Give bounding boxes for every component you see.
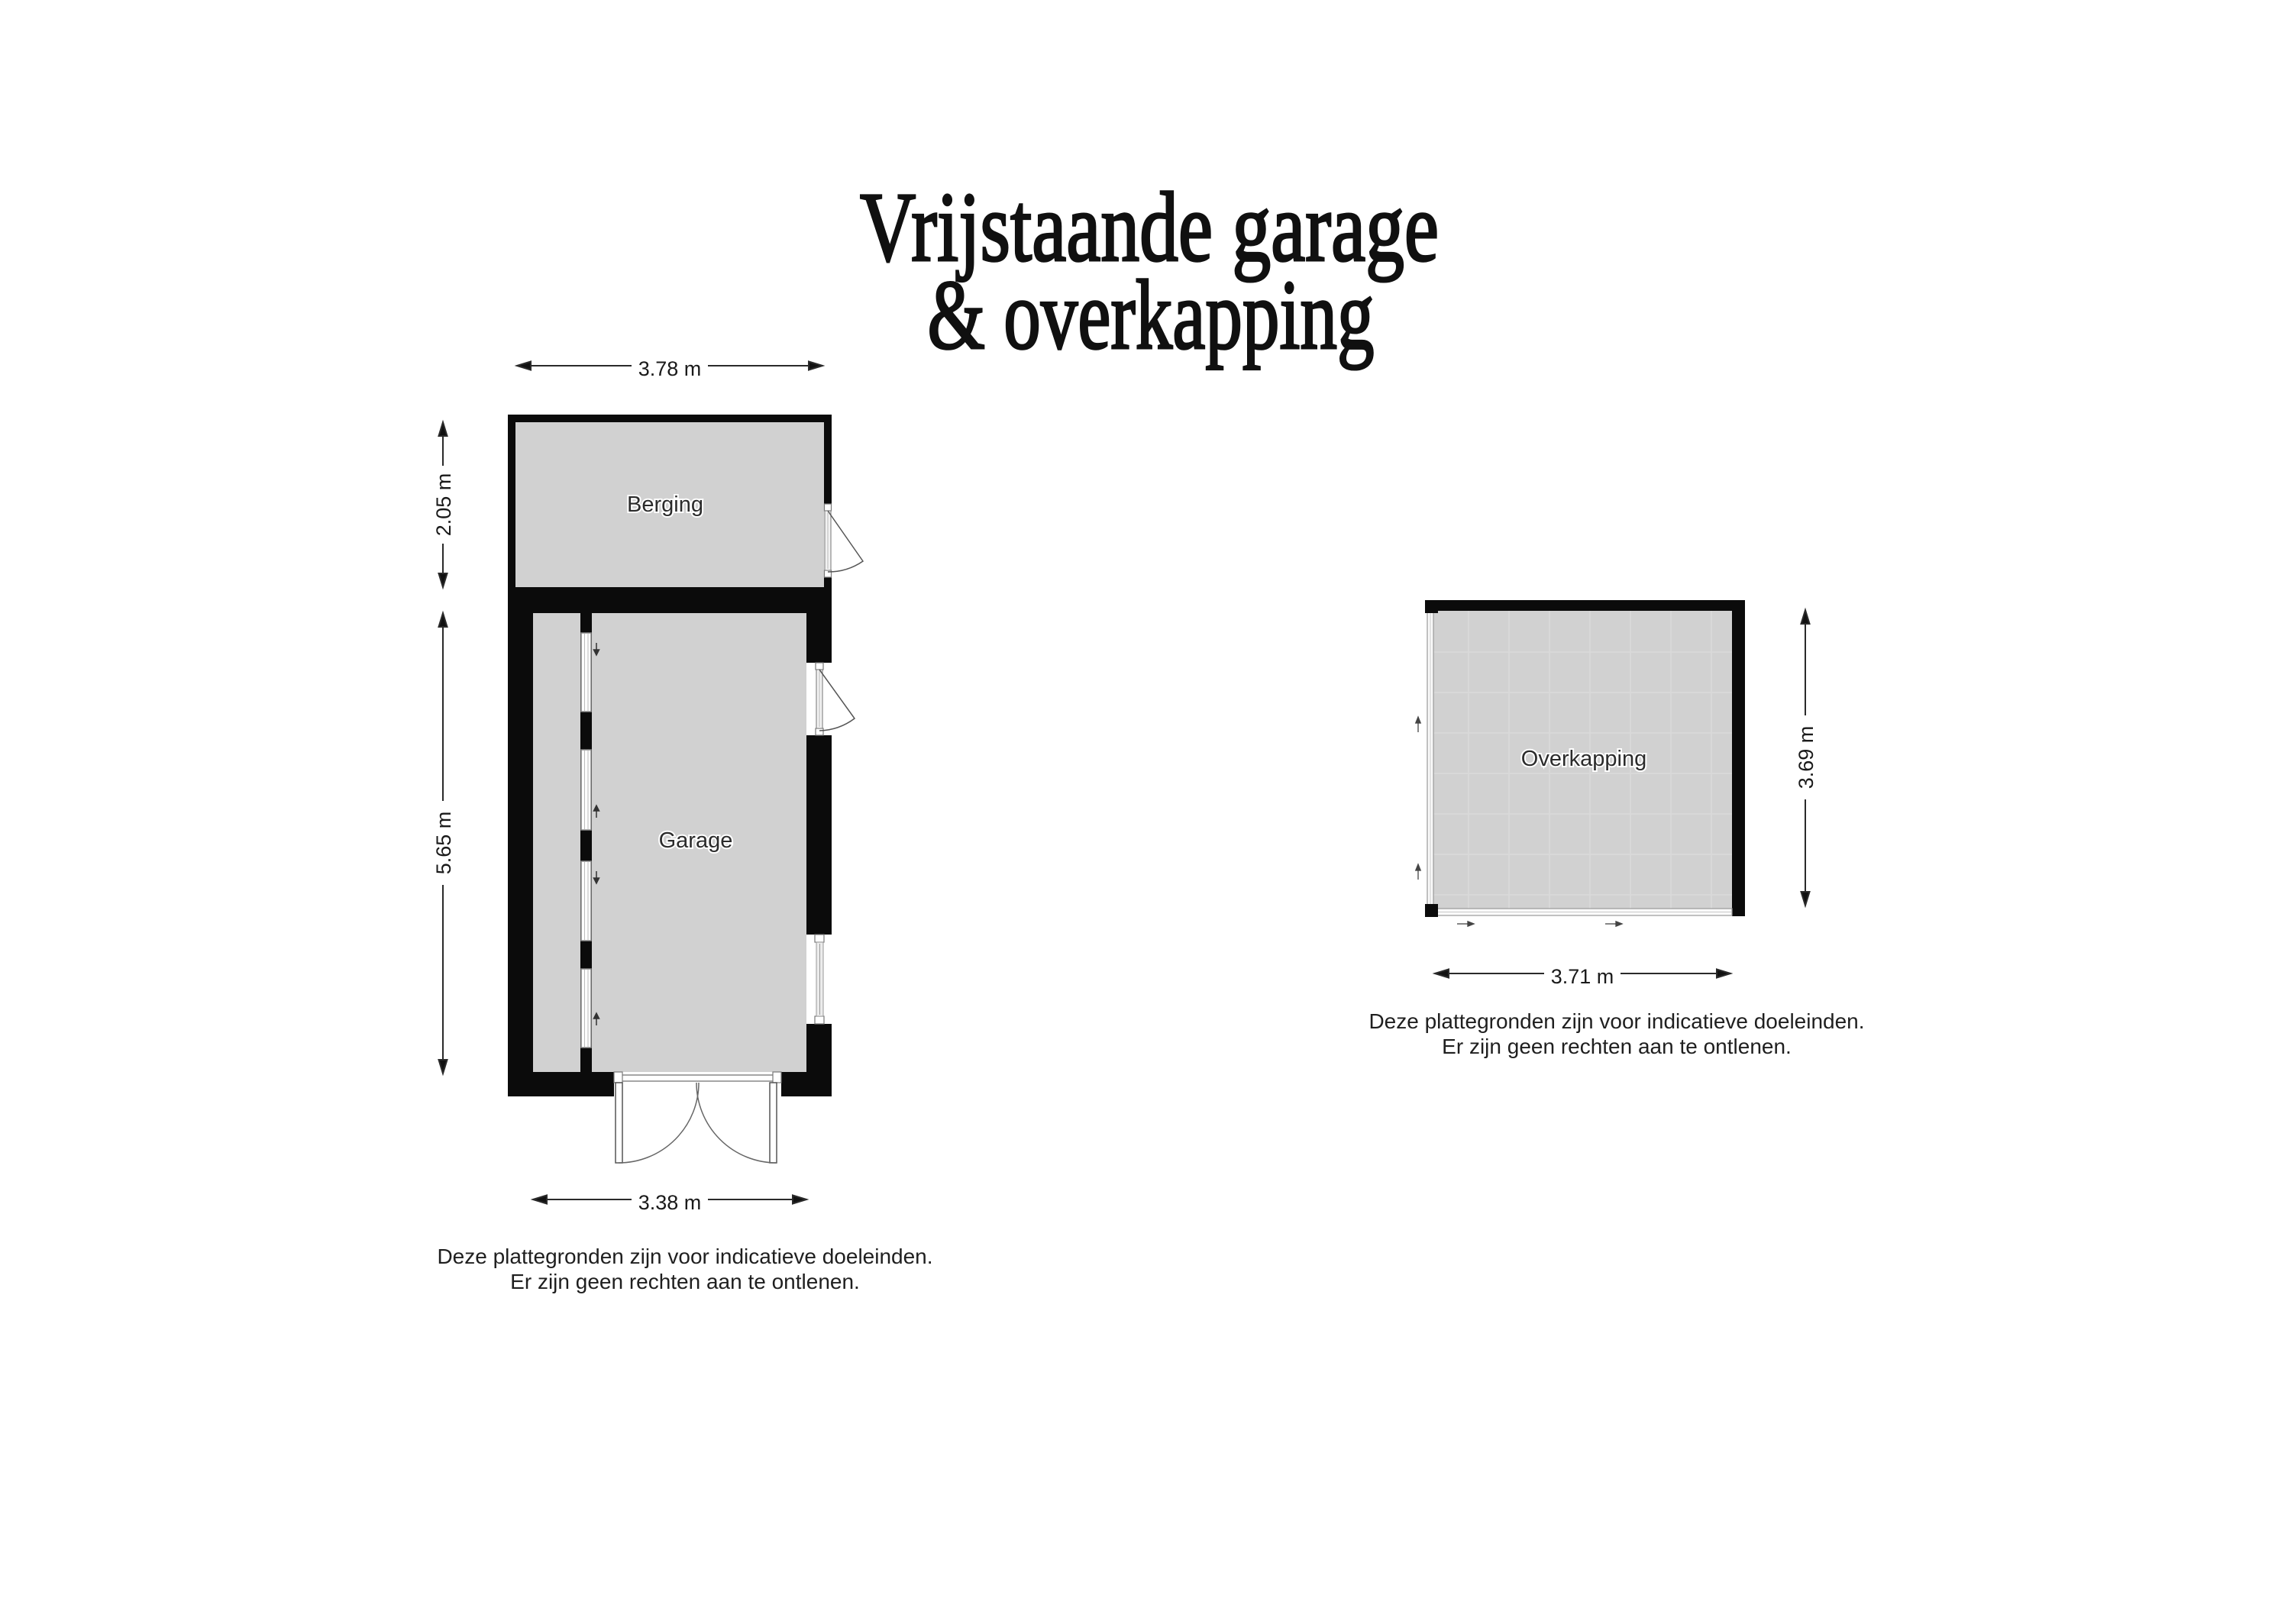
svg-text:Garage: Garage (659, 828, 733, 853)
svg-text:Berging: Berging (627, 492, 703, 517)
svg-text:3.69 m: 3.69 m (1795, 726, 1818, 789)
svg-text:3.38 m: 3.38 m (638, 1191, 702, 1214)
svg-text:3.78 m: 3.78 m (638, 357, 702, 380)
svg-text:Overkapping: Overkapping (1521, 747, 1646, 771)
svg-text:2.05 m: 2.05 m (432, 473, 455, 537)
svg-text:Deze plattegronden zijn voor i: Deze plattegronden zijn voor indicatieve… (1368, 1009, 1864, 1033)
svg-text:Deze plattegronden zijn voor i: Deze plattegronden zijn voor indicatieve… (437, 1245, 932, 1268)
svg-text:5.65 m: 5.65 m (432, 812, 455, 875)
svg-text:Er zijn geen rechten aan te on: Er zijn geen rechten aan te ontlenen. (510, 1270, 860, 1293)
svg-text:3.71 m: 3.71 m (1551, 965, 1614, 988)
svg-text:& overkapping: & overkapping (928, 260, 1375, 370)
svg-text:Er zijn geen rechten aan te on: Er zijn geen rechten aan te ontlenen. (1442, 1035, 1792, 1058)
